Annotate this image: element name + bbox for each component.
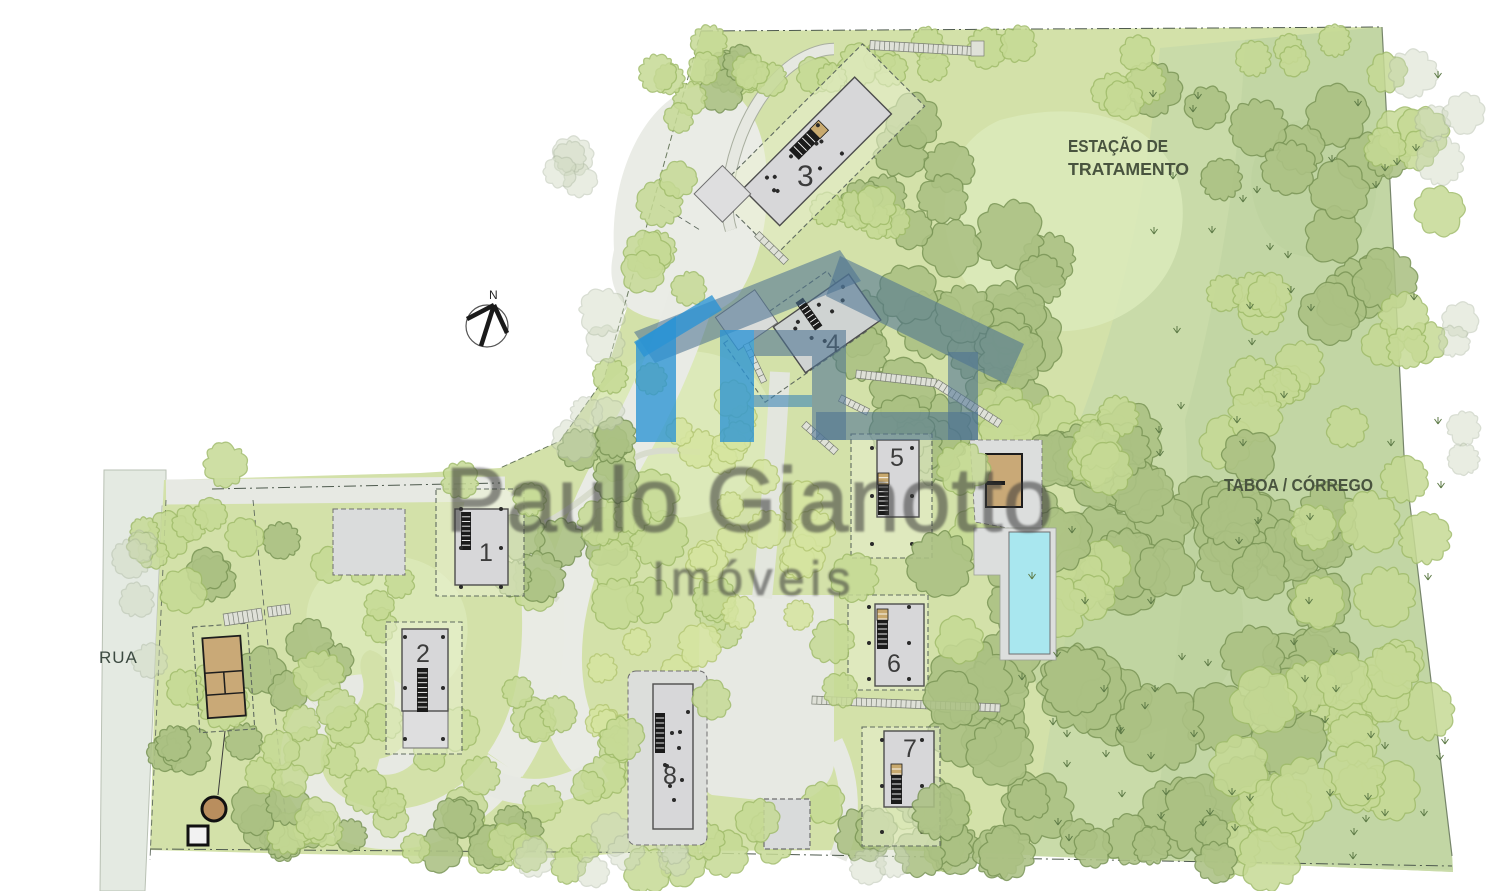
svg-text:TRATAMENTO: TRATAMENTO bbox=[1068, 159, 1189, 179]
svg-text:8: 8 bbox=[663, 762, 677, 790]
svg-text:ESTAÇÃO DE: ESTAÇÃO DE bbox=[1068, 135, 1168, 156]
svg-text:3: 3 bbox=[797, 160, 814, 193]
svg-text:Imóveis: Imóveis bbox=[652, 553, 856, 606]
svg-text:6: 6 bbox=[887, 650, 901, 678]
svg-text:RUA: RUA bbox=[99, 648, 138, 667]
svg-text:TABOA / CÓRREGO: TABOA / CÓRREGO bbox=[1224, 474, 1373, 495]
svg-text:N: N bbox=[489, 288, 498, 302]
svg-text:2: 2 bbox=[416, 640, 430, 668]
svg-text:Paulo Gianotto: Paulo Gianotto bbox=[445, 450, 1054, 551]
svg-text:7: 7 bbox=[903, 735, 917, 763]
